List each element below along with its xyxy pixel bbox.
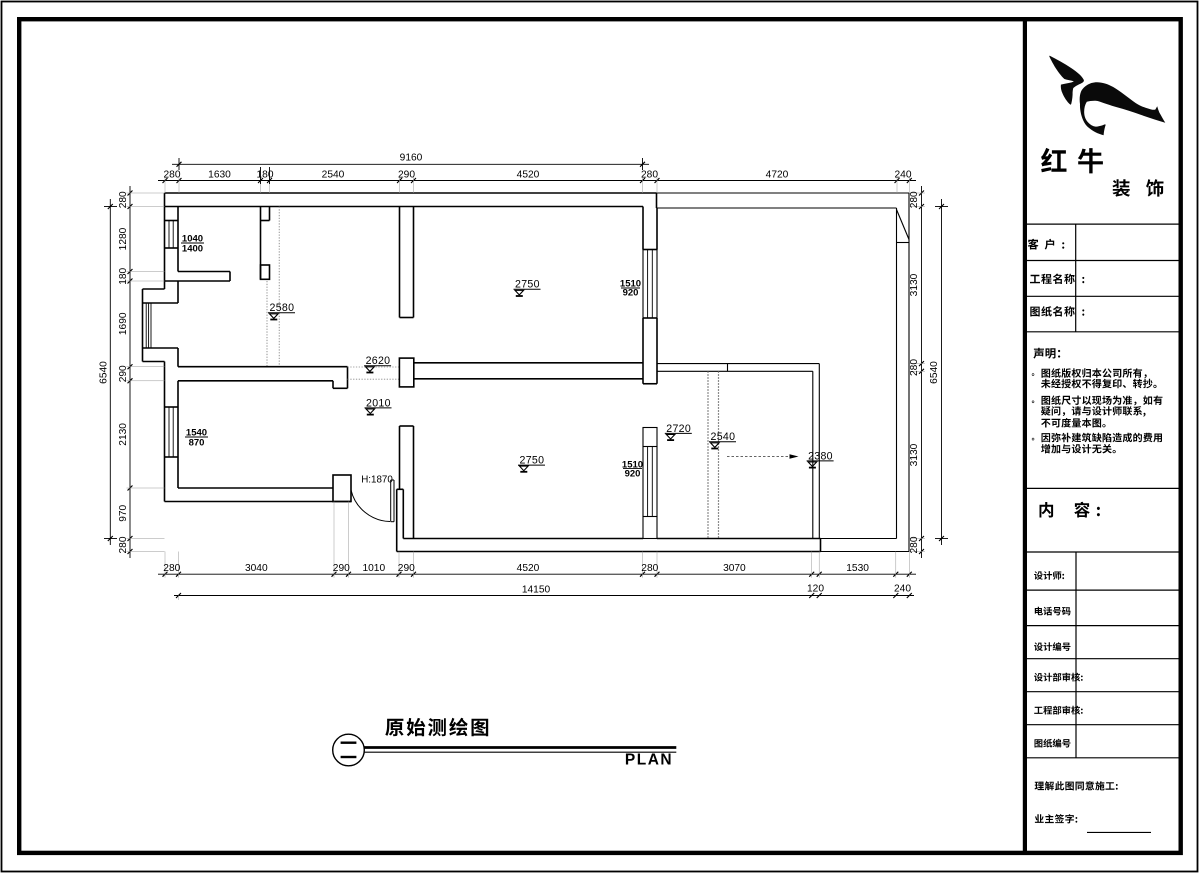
svg-text:H:1870: H:1870	[361, 475, 393, 486]
svg-text:2130: 2130	[118, 423, 129, 446]
svg-text:2540: 2540	[322, 170, 345, 181]
svg-text:1530: 1530	[846, 563, 869, 574]
svg-text:9160: 9160	[400, 153, 423, 164]
svg-text:290: 290	[333, 563, 350, 574]
svg-text:280: 280	[641, 563, 658, 574]
svg-text:120: 120	[807, 584, 824, 595]
svg-text:280: 280	[164, 170, 181, 181]
svg-text:280: 280	[118, 191, 129, 208]
svg-text:1630: 1630	[208, 170, 231, 181]
svg-text:PLAN: PLAN	[625, 752, 673, 769]
svg-text:1690: 1690	[118, 312, 129, 335]
svg-text:4520: 4520	[517, 170, 540, 181]
svg-text:920: 920	[623, 288, 639, 299]
svg-text:920: 920	[625, 468, 641, 479]
svg-text:1010: 1010	[362, 563, 385, 574]
svg-text:6540: 6540	[99, 361, 110, 384]
svg-text:180: 180	[257, 170, 274, 181]
svg-text:280: 280	[909, 191, 920, 208]
svg-text:280: 280	[118, 536, 129, 553]
svg-text:4520: 4520	[517, 563, 540, 574]
svg-text:240: 240	[895, 170, 912, 181]
svg-text:280: 280	[163, 563, 180, 574]
svg-text:290: 290	[398, 170, 415, 181]
svg-text:280: 280	[641, 170, 658, 181]
svg-text:870: 870	[189, 438, 205, 449]
svg-text:6540: 6540	[929, 361, 940, 384]
svg-text:290: 290	[118, 365, 129, 382]
svg-text:3070: 3070	[723, 563, 746, 574]
svg-text:280: 280	[909, 536, 920, 553]
svg-text:240: 240	[894, 584, 911, 595]
svg-text:970: 970	[118, 504, 129, 521]
svg-text:3130: 3130	[909, 273, 920, 296]
svg-text:14150: 14150	[522, 585, 551, 596]
svg-text:180: 180	[118, 267, 129, 284]
svg-text:4720: 4720	[766, 170, 789, 181]
svg-text:3040: 3040	[245, 563, 268, 574]
svg-text:290: 290	[398, 563, 415, 574]
svg-text:3130: 3130	[909, 443, 920, 466]
svg-text:280: 280	[909, 359, 920, 376]
svg-text:1280: 1280	[118, 227, 129, 250]
svg-text:1400: 1400	[182, 244, 203, 255]
